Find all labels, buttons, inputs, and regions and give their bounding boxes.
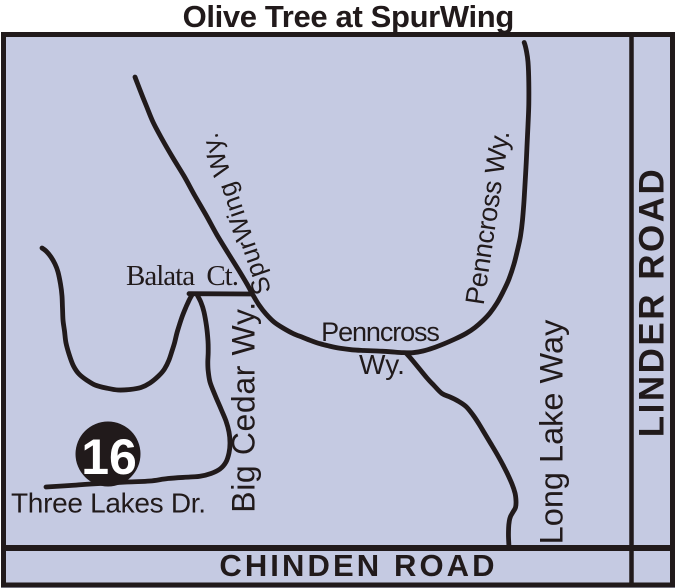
svg-text:Long Lake Way: Long Lake Way <box>534 319 570 544</box>
svg-text:Penncross: Penncross <box>321 317 439 347</box>
svg-text:Wy.: Wy. <box>359 349 405 380</box>
svg-text:Olive Tree at SpurWing: Olive Tree at SpurWing <box>183 0 514 34</box>
svg-text:CHINDEN ROAD: CHINDEN ROAD <box>219 548 497 583</box>
svg-text:Three Lakes Dr.: Three Lakes Dr. <box>11 488 206 519</box>
svg-text:Big Cedar Wy.: Big Cedar Wy. <box>226 301 262 512</box>
svg-text:16: 16 <box>81 429 137 485</box>
svg-text:Balata Ct.: Balata Ct. <box>126 260 238 292</box>
svg-text:LINDER ROAD: LINDER ROAD <box>633 167 672 438</box>
